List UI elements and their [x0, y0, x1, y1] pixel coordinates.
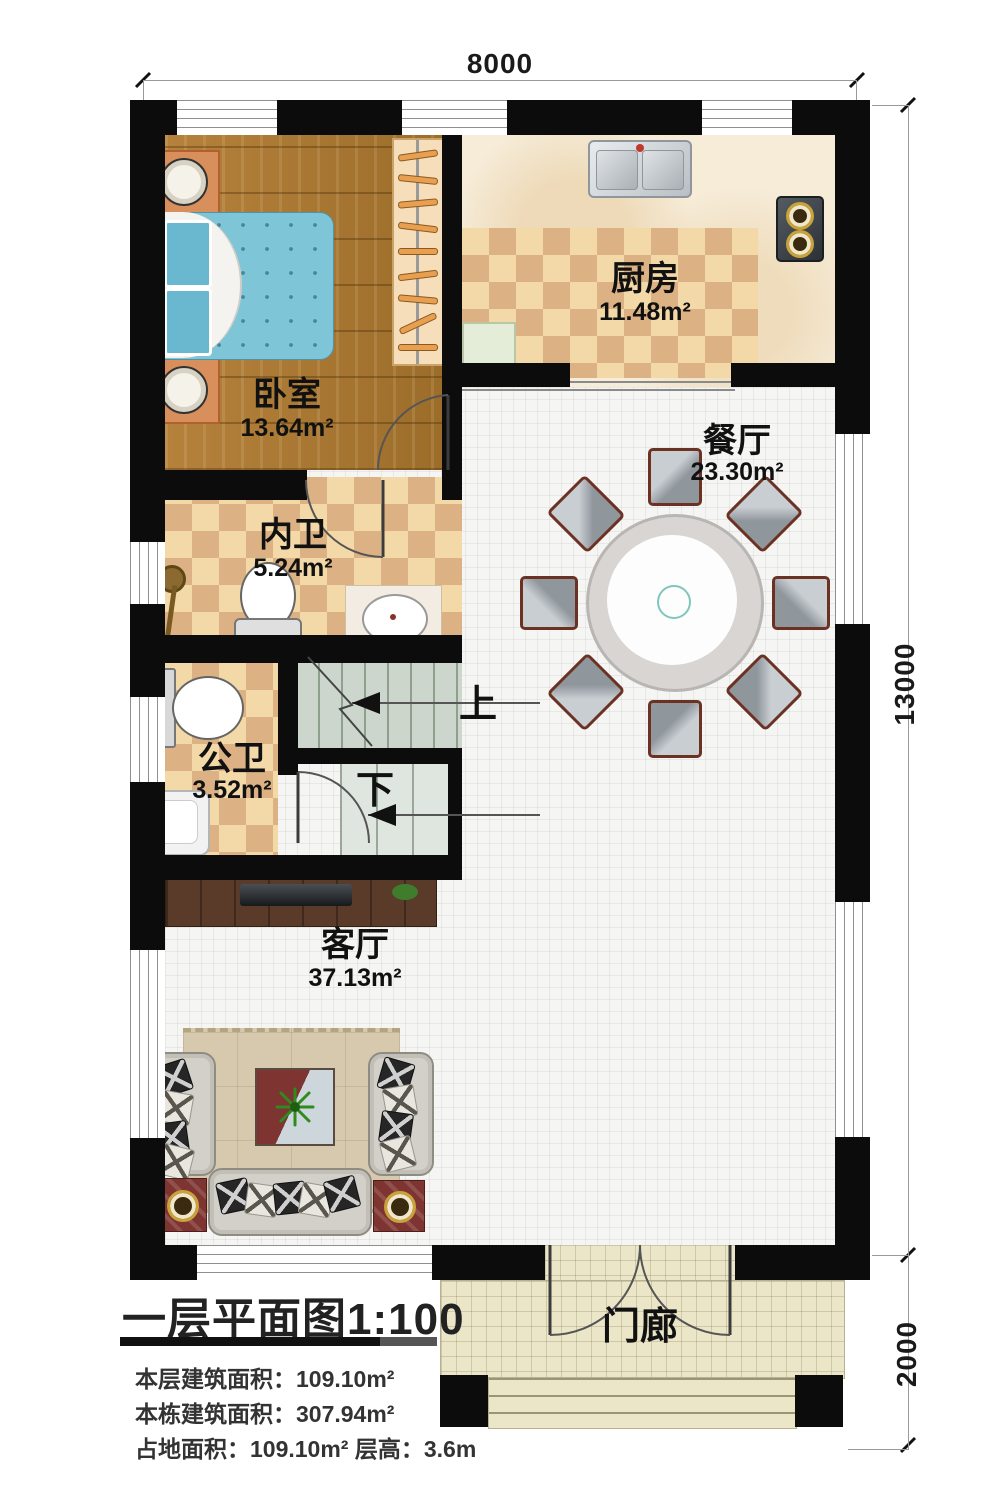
wall-innerbath-bottom	[130, 635, 462, 663]
dining-chair	[520, 576, 578, 630]
stairs-down-label: 下	[345, 772, 405, 810]
floor-plan: 8000 13000 2000 卧室 13.64m² 厨房 11.48m² 餐厅…	[0, 0, 1000, 1485]
coffee-table	[255, 1068, 335, 1146]
living-label: 客厅	[255, 928, 455, 962]
public-bath-label: 公卫	[132, 742, 332, 776]
dim-ext-right-bottom	[848, 1449, 908, 1450]
window-top-closet	[400, 100, 509, 135]
sink-basin-left	[596, 150, 638, 190]
toilet-public-bath	[172, 676, 244, 740]
bedroom-label: 卧室	[187, 378, 387, 412]
inner-bath-area: 5.24m²	[193, 556, 393, 581]
nightstand-lamp-top	[160, 158, 208, 206]
tv	[240, 884, 352, 906]
dim-line-right	[908, 105, 909, 1450]
inner-bath-label: 内卫	[193, 518, 393, 552]
dining-table-center	[657, 585, 691, 619]
living-area: 37.13m²	[255, 966, 455, 991]
window-top-bedroom	[175, 100, 279, 135]
dining-area: 23.30m²	[637, 460, 837, 485]
dining-label: 餐厅	[637, 424, 837, 458]
title-underline	[120, 1337, 437, 1346]
kitchen-sink	[588, 140, 692, 198]
title-info-line3: 占地面积：109.10m² 层高：3.6m	[135, 1430, 595, 1464]
window-left-innerbath	[130, 540, 165, 606]
dining-table	[586, 514, 764, 692]
stairs-up-run	[295, 655, 462, 748]
bedroom-area: 13.64m²	[187, 416, 387, 441]
dim-side-value: 13000	[889, 624, 921, 744]
window-top-kitchen	[700, 100, 794, 135]
wardrobe	[392, 138, 444, 366]
porch-label: 门廊	[545, 1308, 735, 1346]
dim-line-top	[143, 80, 857, 81]
burner	[786, 202, 814, 230]
window-bottom-living	[195, 1245, 434, 1280]
bed-pillow-1	[164, 220, 212, 288]
title-info-line2: 本栋建筑面积：307.94m²	[135, 1395, 555, 1429]
stairs-up-label: 上	[448, 686, 508, 724]
hanger	[398, 344, 438, 351]
dining-chair	[772, 576, 830, 630]
sink-basin-right	[642, 150, 684, 190]
wall-bedroom-bottom	[130, 470, 307, 500]
dining-chair	[648, 700, 702, 758]
basin-drain	[390, 614, 396, 620]
kitchen-label: 厨房	[545, 262, 745, 296]
dim-top-value: 8000	[430, 48, 570, 80]
dim-ext-top-right	[856, 80, 857, 100]
kitchen-stove	[776, 196, 824, 262]
window-left-living	[130, 948, 165, 1140]
title-info-line1: 本层建筑面积：109.10m²	[135, 1360, 555, 1394]
dim-ext-right-mid	[872, 1255, 908, 1256]
end-table-lamp-left	[167, 1190, 199, 1222]
wall-kitchen-bottom-left	[462, 363, 570, 387]
bed-pillow-2	[164, 288, 212, 356]
dim-porch-value: 2000	[891, 1299, 923, 1409]
porch-column-right	[795, 1375, 843, 1427]
public-bath-area: 3.52m²	[132, 778, 332, 803]
burner	[786, 230, 814, 258]
entry-door-gap	[545, 1245, 735, 1280]
window-right-dining	[835, 432, 870, 626]
window-right-living	[835, 900, 870, 1139]
hanger	[398, 248, 438, 255]
dim-ext-right-top	[872, 105, 908, 106]
coffee-table-plant	[273, 1085, 317, 1129]
wall-kitchen-bottom-right	[731, 363, 835, 387]
wall-stair-right	[448, 748, 462, 857]
kitchen-area: 11.48m²	[545, 300, 745, 325]
end-table-lamp-right	[384, 1191, 416, 1223]
tv-decor-plant	[392, 884, 418, 900]
wall-hall-living	[130, 855, 462, 880]
dim-ext-top-left	[143, 80, 144, 100]
sink-faucet	[636, 144, 644, 152]
wall-bedroom-kitchen	[442, 100, 462, 500]
